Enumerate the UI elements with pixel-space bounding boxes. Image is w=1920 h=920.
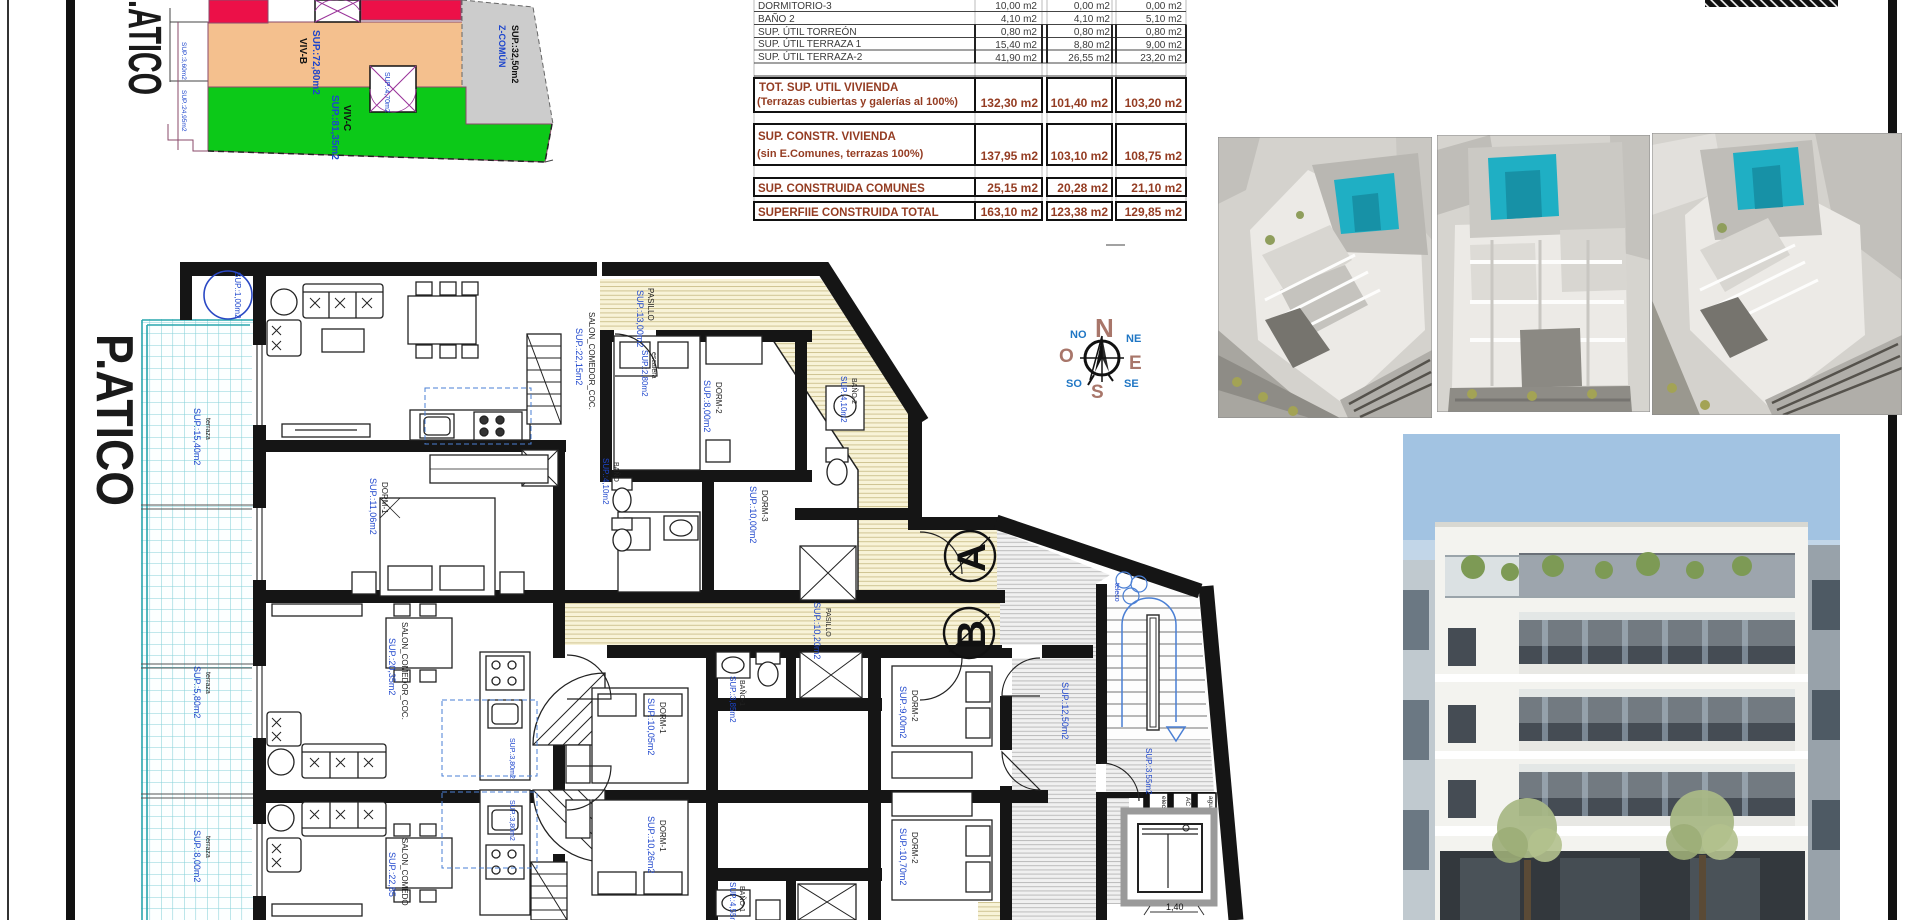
svg-text:SUP.:22,85: SUP.:22,85	[387, 852, 397, 897]
svg-text:25,15 m2: 25,15 m2	[987, 181, 1038, 195]
svg-text:SUP.:1,00m2: SUP.:1,00m2	[233, 272, 242, 319]
svg-text:0,00 m2: 0,00 m2	[1146, 1, 1183, 12]
svg-text:0,80 m2: 0,80 m2	[1001, 27, 1038, 38]
svg-text:SUP. ÚTIL TERRAZA-2: SUP. ÚTIL TERRAZA-2	[758, 50, 863, 63]
svg-text:101,40 m2: 101,40 m2	[1051, 96, 1109, 110]
svg-text:SALON_COMEDO: SALON_COMEDO	[400, 838, 409, 906]
svg-text:.ATICO: .ATICO	[119, 0, 171, 95]
svg-text:23,20 m2: 23,20 m2	[1140, 53, 1182, 64]
svg-text:DORM-1: DORM-1	[658, 702, 667, 734]
svg-text:SUP. CONSTR. VIVIENDA: SUP. CONSTR. VIVIENDA	[758, 131, 896, 143]
svg-text:0,80 m2: 0,80 m2	[1146, 27, 1183, 38]
svg-text:VIV-B: VIV-B	[297, 38, 308, 64]
svg-text:SUP.:5,80m2: SUP.:5,80m2	[192, 666, 202, 718]
svg-text:escalera: escalera	[650, 352, 657, 379]
svg-text:5,10 m2: 5,10 m2	[1146, 14, 1183, 25]
svg-text:137,95 m2: 137,95 m2	[981, 149, 1039, 163]
svg-text:SUP.:3,80m2: SUP.:3,80m2	[508, 800, 515, 841]
svg-text:SUP.:11,06m2: SUP.:11,06m2	[368, 478, 378, 535]
svg-text:SUP.:4,10m2: SUP.:4,10m2	[839, 376, 848, 423]
svg-text:SUP.:20,35m2: SUP.:20,35m2	[387, 638, 397, 695]
svg-text:SUP.:3,60m2: SUP.:3,60m2	[180, 42, 187, 80]
svg-text:DORMITORIO-3: DORMITORIO-3	[758, 1, 832, 12]
svg-text:VIV-C: VIV-C	[341, 105, 352, 131]
svg-text:BAÑO 2: BAÑO 2	[758, 12, 795, 25]
svg-text:SE: SE	[1124, 378, 1139, 390]
svg-text:163,10 m2: 163,10 m2	[981, 205, 1039, 219]
svg-text:NE: NE	[1126, 333, 1141, 345]
svg-text:SUP.:24,95m2: SUP.:24,95m2	[180, 90, 187, 132]
svg-text:SUP.:8,00m2: SUP.:8,00m2	[192, 830, 202, 882]
svg-text:4,10 m2: 4,10 m2	[1001, 14, 1038, 25]
svg-text:(sin E.Comunes, terrazas 100%): (sin E.Comunes, terrazas 100%)	[757, 148, 924, 160]
svg-text:SUP.:10,05m2: SUP.:10,05m2	[646, 698, 656, 755]
svg-text:BAÑO: BAÑO	[612, 462, 621, 482]
svg-text:SO: SO	[1066, 378, 1082, 390]
svg-text:PASILLO: PASILLO	[824, 608, 831, 637]
svg-text:SUP.:32,50m2: SUP.:32,50m2	[510, 25, 520, 83]
svg-text:teleco: teleco	[1113, 583, 1120, 602]
svg-text:SUP.:9,00m2: SUP.:9,00m2	[898, 686, 908, 738]
svg-text:Z-COMÚN: Z-COMÚN	[497, 25, 508, 68]
svg-text:SUP.:12,50m2: SUP.:12,50m2	[1060, 682, 1070, 739]
svg-text:SUP.:13,00m2: SUP.:13,00m2	[635, 290, 645, 347]
svg-text:SUP.:4,70m2: SUP.:4,70m2	[383, 72, 390, 113]
svg-text:SUP.:10,26m2: SUP.:10,26m2	[646, 816, 656, 873]
svg-text:A: A	[950, 543, 994, 572]
svg-text:129,85 m2: 129,85 m2	[1125, 205, 1183, 219]
svg-text:BAÑO-2: BAÑO-2	[850, 378, 859, 404]
svg-text:123,38 m2: 123,38 m2	[1051, 205, 1109, 219]
svg-text:DORM-2: DORM-2	[714, 382, 723, 414]
svg-text:SUP.:81,35m2: SUP.:81,35m2	[329, 95, 340, 160]
svg-text:SALON_COMEDOR_COC.: SALON_COMEDOR_COC.	[587, 312, 596, 410]
svg-text:E: E	[1129, 353, 1142, 374]
svg-text:SUP.:10,70m2: SUP.:10,70m2	[898, 828, 908, 885]
svg-text:SUP.:8,00m2: SUP.:8,00m2	[702, 380, 712, 432]
svg-text:15,40 m2: 15,40 m2	[995, 40, 1037, 51]
svg-text:SUPERFIIE CONSTRUIDA TOTAL: SUPERFIIE CONSTRUIDA TOTAL	[758, 207, 939, 219]
svg-text:P.ATICO: P.ATICO	[85, 334, 143, 506]
svg-text:SUP.:4,10m2: SUP.:4,10m2	[601, 458, 610, 505]
svg-text:132,30 m2: 132,30 m2	[981, 96, 1039, 110]
svg-text:(Terrazas cubiertas y galerías: (Terrazas cubiertas y galerías al 100%)	[757, 96, 958, 108]
svg-text:4,10 m2: 4,10 m2	[1074, 14, 1111, 25]
svg-text:20,28 m2: 20,28 m2	[1057, 181, 1108, 195]
svg-text:terraza: terraza	[204, 418, 211, 440]
svg-text:DORM-2: DORM-2	[910, 690, 919, 722]
svg-text:103,20 m2: 103,20 m2	[1125, 96, 1183, 110]
svg-text:N: N	[1095, 313, 1114, 343]
svg-text:DORM-2: DORM-2	[910, 832, 919, 864]
svg-text:elec: elec	[1160, 796, 1167, 809]
svg-text:PASILLO: PASILLO	[646, 288, 655, 321]
svg-text:SUP.:4,55m2: SUP.:4,55m2	[728, 882, 737, 920]
svg-text:DORM-1: DORM-1	[658, 820, 667, 852]
svg-text:terraza: terraza	[204, 672, 211, 694]
svg-text:26,55 m2: 26,55 m2	[1068, 53, 1110, 64]
svg-text:NO: NO	[1070, 329, 1087, 341]
svg-text:108,75 m2: 108,75 m2	[1125, 149, 1183, 163]
svg-text:BAÑO-1: BAÑO-1	[738, 886, 747, 912]
svg-text:SUP. CONSTRUIDA COMUNES: SUP. CONSTRUIDA COMUNES	[758, 183, 925, 195]
svg-text:DORM-3: DORM-3	[760, 490, 769, 522]
svg-text:8,80 m2: 8,80 m2	[1074, 40, 1111, 51]
svg-text:103,10 m2: 103,10 m2	[1051, 149, 1109, 163]
svg-text:SUP. ÚTIL TORREÓN: SUP. ÚTIL TORREÓN	[758, 25, 857, 38]
svg-text:10,00 m2: 10,00 m2	[995, 1, 1037, 12]
svg-text:41,90 m2: 41,90 m2	[995, 53, 1037, 64]
svg-text:1,40: 1,40	[1166, 902, 1184, 912]
svg-text:SUP.:3,80m2: SUP.:3,80m2	[508, 738, 515, 779]
svg-text:9,00 m2: 9,00 m2	[1146, 40, 1183, 51]
svg-text:TOT. SUP. UTIL VIVIENDA: TOT. SUP. UTIL VIVIENDA	[759, 82, 898, 94]
svg-text:O: O	[1059, 346, 1074, 367]
svg-text:SUP.:3,85m2: SUP.:3,85m2	[728, 676, 737, 723]
svg-text:SUP.:2,80m2: SUP.:2,80m2	[640, 350, 649, 397]
svg-text:SUP.:10,00m2: SUP.:10,00m2	[748, 486, 758, 543]
svg-text:SUP.:22,15m2: SUP.:22,15m2	[574, 328, 584, 385]
svg-text:0,00 m2: 0,00 m2	[1074, 1, 1111, 12]
svg-text:AC: AC	[1184, 797, 1191, 806]
svg-text:S: S	[1091, 382, 1104, 403]
svg-text:terraza: terraza	[204, 836, 211, 858]
svg-text:SUP.:10,20m2: SUP.:10,20m2	[812, 602, 822, 659]
svg-text:21,10 m2: 21,10 m2	[1131, 181, 1182, 195]
svg-text:0,80 m2: 0,80 m2	[1074, 27, 1111, 38]
svg-text:DORM-1: DORM-1	[380, 482, 389, 514]
svg-text:SALON_COMEDOR_COC.: SALON_COMEDOR_COC.	[400, 622, 409, 720]
svg-text:SUP.:15,40m2: SUP.:15,40m2	[192, 408, 202, 465]
svg-text:SUP.:72,80m2: SUP.:72,80m2	[310, 30, 321, 95]
svg-text:SUP.:3,55m2: SUP.:3,55m2	[1144, 748, 1153, 795]
svg-text:SUP. ÚTIL TERRAZA 1: SUP. ÚTIL TERRAZA 1	[758, 37, 862, 50]
svg-text:BAÑO-1: BAÑO-1	[738, 680, 747, 706]
